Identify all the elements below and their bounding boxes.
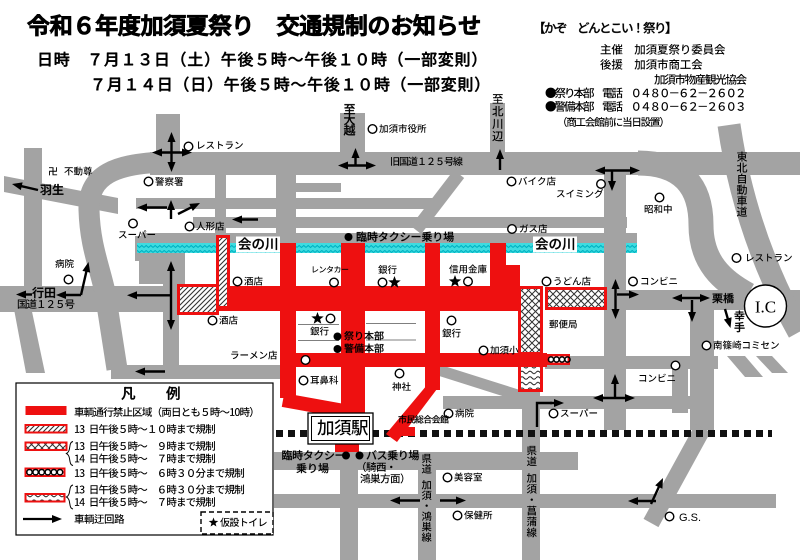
svg-text:I.C: I.C — [755, 298, 776, 317]
svg-text:G.S.: G.S. — [679, 512, 701, 524]
